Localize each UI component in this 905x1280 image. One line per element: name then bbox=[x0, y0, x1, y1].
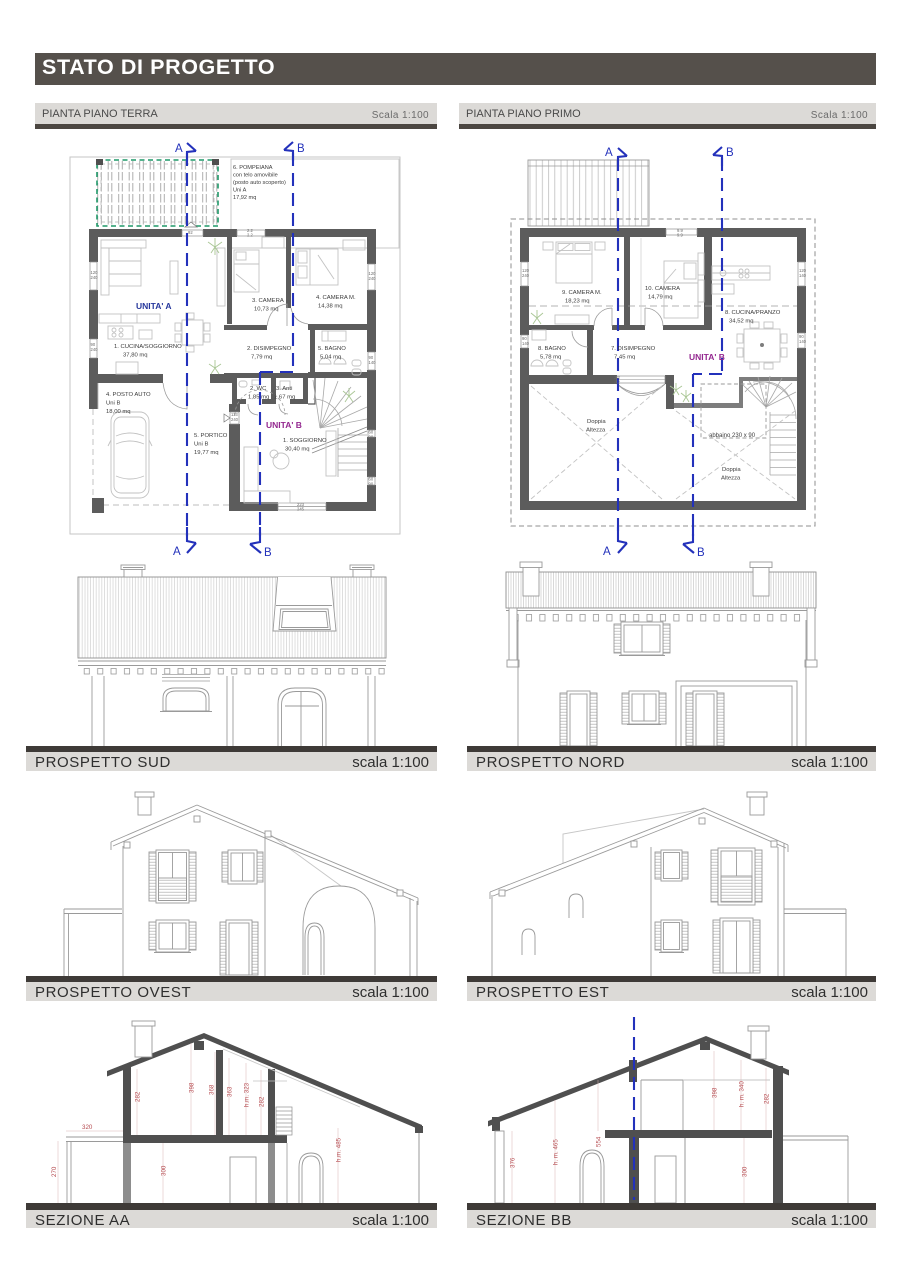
svg-text:1. CUCINA/SOGGIORNO: 1. CUCINA/SOGGIORNO bbox=[114, 344, 182, 350]
svg-text:Uni B: Uni B bbox=[106, 401, 120, 407]
svg-text:300: 300 bbox=[742, 1166, 749, 1177]
svg-text:con telo amovibile: con telo amovibile bbox=[233, 173, 278, 179]
svg-text:B: B bbox=[297, 143, 305, 155]
svg-text:140: 140 bbox=[369, 360, 377, 365]
svg-text:240: 240 bbox=[369, 276, 377, 281]
svg-text:2.2: 2.2 bbox=[247, 233, 253, 238]
svg-text:9. CAMERA M.: 9. CAMERA M. bbox=[562, 290, 602, 296]
svg-text:240: 240 bbox=[231, 417, 239, 422]
svg-text:UNITA' B: UNITA' B bbox=[689, 352, 725, 362]
svg-text:92: 92 bbox=[188, 230, 193, 235]
svg-text:1,85 mq: 1,85 mq bbox=[248, 395, 269, 401]
svg-text:17,92 mq: 17,92 mq bbox=[233, 195, 256, 201]
svg-text:UNITA' A: UNITA' A bbox=[136, 301, 172, 311]
svg-text:B: B bbox=[697, 547, 705, 559]
svg-text:240: 240 bbox=[522, 273, 530, 278]
svg-text:UNITA' B: UNITA' B bbox=[266, 420, 302, 430]
svg-text:Uni A: Uni A bbox=[233, 188, 247, 194]
svg-text:5,78 mq: 5,78 mq bbox=[540, 355, 561, 361]
svg-text:140: 140 bbox=[799, 339, 807, 344]
svg-text:B: B bbox=[726, 147, 734, 159]
svg-text:h. m. 465: h. m. 465 bbox=[553, 1139, 560, 1165]
svg-text:7. DISIMPEGNO: 7. DISIMPEGNO bbox=[611, 346, 656, 352]
svg-text:140: 140 bbox=[522, 341, 530, 346]
svg-text:282: 282 bbox=[764, 1093, 771, 1104]
svg-text:2. WC: 2. WC bbox=[250, 386, 267, 392]
svg-text:18,00 mq: 18,00 mq bbox=[106, 409, 131, 415]
svg-text:B: B bbox=[264, 547, 272, 559]
svg-text:Doppia: Doppia bbox=[722, 467, 741, 473]
svg-text:A: A bbox=[605, 147, 613, 159]
svg-text:Altezza: Altezza bbox=[586, 428, 606, 434]
svg-text:300: 300 bbox=[161, 1165, 168, 1176]
svg-text:282: 282 bbox=[135, 1091, 142, 1102]
svg-text:Doppia: Doppia bbox=[587, 419, 606, 425]
svg-text:5. PORTICO: 5. PORTICO bbox=[194, 433, 228, 439]
svg-text:270: 270 bbox=[51, 1166, 58, 1177]
svg-text:398: 398 bbox=[189, 1082, 196, 1093]
svg-text:9.9: 9.9 bbox=[677, 233, 683, 238]
svg-text:4. POSTO AUTO: 4. POSTO AUTO bbox=[106, 392, 151, 398]
svg-text:30,40 mq: 30,40 mq bbox=[285, 447, 310, 453]
svg-text:4. CAMERA M.: 4. CAMERA M. bbox=[316, 295, 356, 301]
svg-text:8. CUCINA/PRANZO: 8. CUCINA/PRANZO bbox=[725, 310, 781, 316]
svg-text:8. BAGNO: 8. BAGNO bbox=[538, 346, 566, 352]
svg-text:19,77 mq: 19,77 mq bbox=[194, 450, 219, 456]
svg-text:A: A bbox=[175, 143, 183, 155]
svg-text:2.2: 2.2 bbox=[614, 380, 620, 385]
svg-text:240: 240 bbox=[91, 347, 99, 352]
svg-text:1,67 mq: 1,67 mq bbox=[274, 395, 295, 401]
svg-text:14,79 mq: 14,79 mq bbox=[648, 295, 673, 301]
svg-text:90: 90 bbox=[369, 435, 374, 440]
svg-text:14,38 mq: 14,38 mq bbox=[318, 304, 343, 310]
svg-text:363: 363 bbox=[227, 1086, 234, 1097]
svg-text:1. SOGGIORNO: 1. SOGGIORNO bbox=[283, 438, 327, 444]
svg-text:10. CAMERA: 10. CAMERA bbox=[645, 286, 680, 292]
svg-text:90: 90 bbox=[369, 482, 374, 487]
svg-text:18,23 mq: 18,23 mq bbox=[565, 299, 590, 305]
svg-text:h. m. 340: h. m. 340 bbox=[739, 1081, 746, 1107]
svg-text:2. DISIMPEGNO: 2. DISIMPEGNO bbox=[247, 346, 292, 352]
svg-text:5. BAGNO: 5. BAGNO bbox=[318, 346, 346, 352]
svg-text:320: 320 bbox=[82, 1124, 93, 1131]
svg-text:3. Anti: 3. Anti bbox=[276, 386, 292, 392]
svg-text:368: 368 bbox=[209, 1084, 216, 1095]
svg-text:7,45 mq: 7,45 mq bbox=[614, 355, 635, 361]
svg-text:A: A bbox=[603, 546, 611, 558]
svg-text:7,79 mq: 7,79 mq bbox=[251, 355, 272, 361]
svg-text:h.m. 323: h.m. 323 bbox=[244, 1082, 251, 1107]
svg-text:240: 240 bbox=[91, 275, 99, 280]
svg-text:A: A bbox=[173, 546, 181, 558]
svg-text:34,52 mq: 34,52 mq bbox=[729, 319, 754, 325]
svg-text:10,73 mq: 10,73 mq bbox=[254, 307, 279, 313]
svg-text:abbaino 230 x 90: abbaino 230 x 90 bbox=[709, 433, 756, 439]
svg-text:245: 245 bbox=[297, 507, 305, 512]
svg-text:h.m. 485: h.m. 485 bbox=[336, 1137, 343, 1162]
svg-text:140: 140 bbox=[799, 273, 807, 278]
svg-text:6. POMPEIANA: 6. POMPEIANA bbox=[233, 165, 273, 171]
svg-text:Altezza: Altezza bbox=[721, 476, 741, 482]
svg-text:282: 282 bbox=[259, 1096, 266, 1107]
svg-text:37,80 mq: 37,80 mq bbox=[123, 353, 148, 359]
svg-text:5,04 mq: 5,04 mq bbox=[320, 355, 341, 361]
svg-text:398: 398 bbox=[712, 1087, 719, 1098]
svg-text:Uni B: Uni B bbox=[194, 442, 208, 448]
svg-text:376: 376 bbox=[510, 1157, 517, 1168]
svg-text:554: 554 bbox=[596, 1136, 603, 1147]
svg-text:3. CAMERA: 3. CAMERA bbox=[252, 298, 284, 304]
svg-text:(posto auto scoperto): (posto auto scoperto) bbox=[233, 180, 286, 186]
